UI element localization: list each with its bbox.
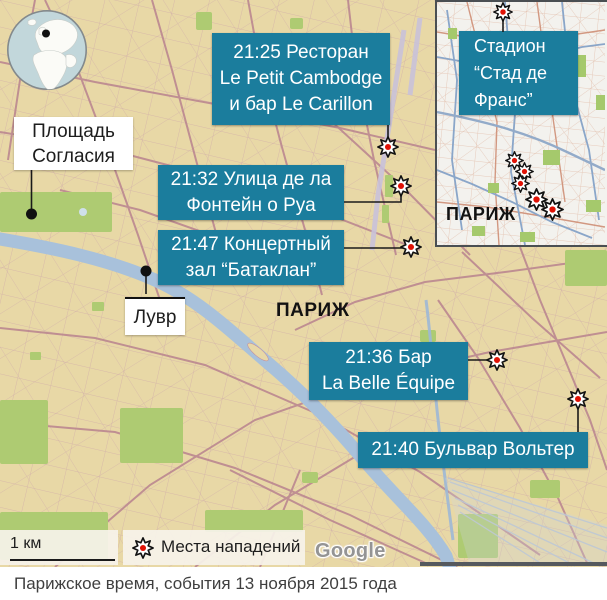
callout-2125-petit-cambodge: 21:25 Ресторан Le Petit Cambodge и бар L… [212,33,390,125]
scale-label: 1 км [10,535,41,553]
burst-icon-legend [132,537,154,559]
paris-map-canvas: Площадь Согласия Лувр ПАРИЖ ПАРИЖ 21:25 … [0,0,607,568]
city-label-paris: ПАРИЖ [276,300,349,322]
callout-line: “Стад де [474,60,578,87]
callout-line: 21:36 Бар [309,345,468,371]
burst-icon-boulevard-voltaire [567,388,589,410]
callout-line: La Belle Équipe [309,371,468,397]
place-label-concorde: Площадь Согласия [14,117,133,170]
callout-line: 21:32 Улица де ла [158,167,344,193]
callout-line: зал “Батаклан” [158,258,344,284]
attack-legend-label: Места нападений [161,537,300,557]
callout-2147-bataclan: 21:47 Концертный зал “Батаклан” [158,230,344,285]
callout-2132-fontaine-au-roi: 21:32 Улица де ла Фонтейн о Руа [158,165,344,220]
callout-2136-belle-equipe: 21:36 Бар La Belle Équipe [309,342,468,400]
burst-icon-stade-de-france [493,2,513,22]
callout-line: Франс” [474,87,578,114]
callout-line: Фонтейн о Руа [158,193,344,219]
scale-line [10,559,115,561]
callout-line: Le Petit Cambodge [212,66,390,92]
callout-stade-de-france: Стадион “Стад де Франс” [459,31,578,115]
caption-bar: Парижское время, события 13 ноября 2015 … [0,567,607,600]
place-label-line: Лувр [125,305,185,330]
caption-text: Парижское время, события 13 ноября 2015 … [14,574,397,594]
burst-icon-belle-equipe [486,349,508,371]
burst-icon-bataclan [400,236,422,258]
burst-icon-fontaine-au-roi [390,175,412,197]
paris-dot-on-globe [42,30,50,38]
burst-icon-petit-cambodge [377,136,399,158]
callout-line: 21:40 Бульвар Вольтер [358,437,588,463]
google-watermark: Google [315,540,386,563]
attack-legend: Места нападений [123,530,305,565]
callout-line: и бар Le Carillon [212,92,390,118]
place-label-louvre: Лувр [125,297,185,335]
burst-icon-inset-cluster-5 [541,198,564,221]
infographic-root: Площадь Согласия Лувр ПАРИЖ ПАРИЖ 21:25 … [0,0,607,600]
scale-bar: 1 км [0,530,118,565]
globe-icon [6,9,88,91]
callout-line: Стадион [474,33,578,60]
place-label-line: Согласия [14,144,133,169]
callout-line: 21:25 Ресторан [212,40,390,66]
park-pond [79,208,87,216]
callout-2140-boulevard-voltaire: 21:40 Бульвар Вольтер [358,432,588,468]
inset-city-label-paris: ПАРИЖ [446,204,516,225]
callout-line: 21:47 Концертный [158,232,344,258]
place-label-line: Площадь [14,119,133,144]
